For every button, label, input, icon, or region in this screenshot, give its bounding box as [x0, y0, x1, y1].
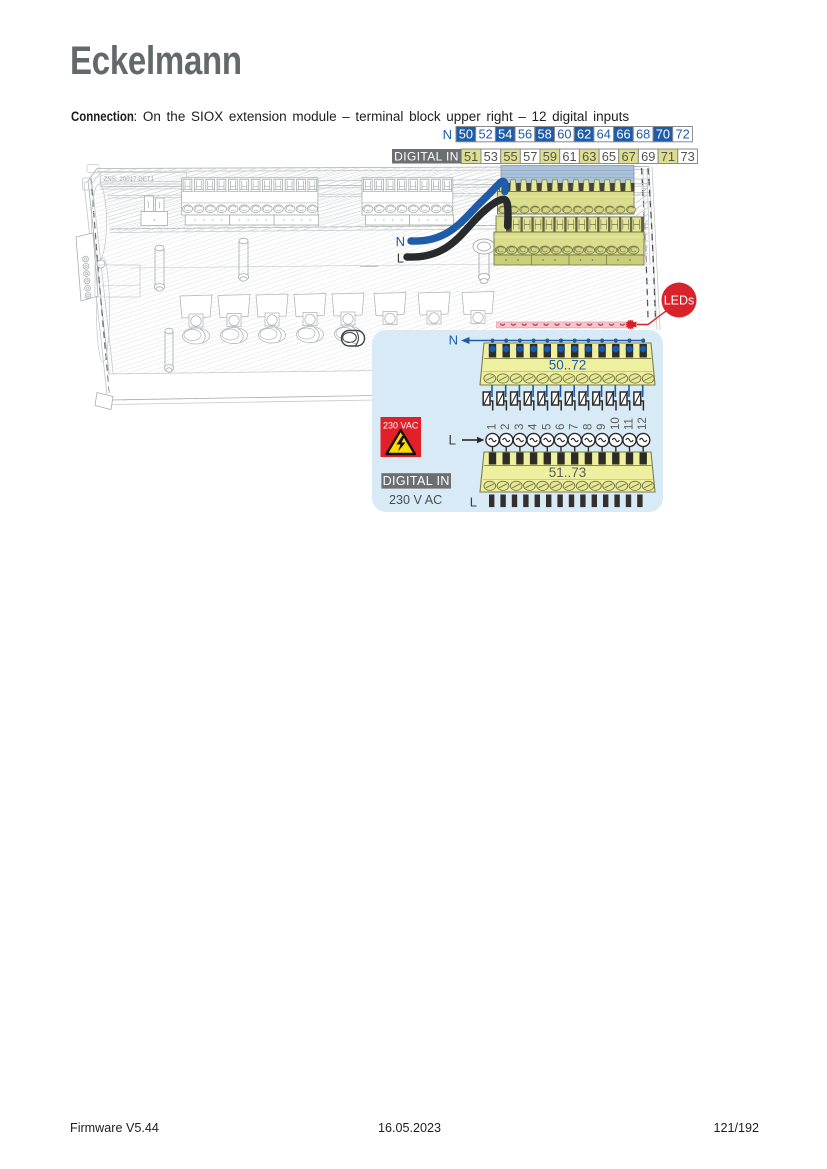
svg-text:DIGITAL IN: DIGITAL IN	[383, 474, 450, 488]
svg-text:8: 8	[582, 424, 594, 430]
svg-text:66: 66	[616, 127, 630, 142]
svg-text:LEDs: LEDs	[664, 294, 695, 308]
svg-text:64: 64	[597, 127, 611, 142]
svg-text:56: 56	[518, 127, 532, 142]
svg-text:230 V AC: 230 V AC	[389, 493, 442, 507]
svg-text:59: 59	[543, 149, 557, 164]
svg-text:68: 68	[636, 127, 650, 142]
svg-text:50..72: 50..72	[549, 358, 587, 373]
svg-text:4: 4	[528, 423, 540, 430]
svg-text:5: 5	[541, 424, 553, 430]
svg-text:58: 58	[537, 127, 551, 142]
svg-text:73: 73	[680, 149, 694, 164]
svg-text:6: 6	[555, 424, 567, 430]
svg-text:61: 61	[562, 149, 576, 164]
svg-text:53: 53	[484, 149, 498, 164]
svg-text:54: 54	[498, 127, 512, 142]
svg-text:70: 70	[656, 127, 670, 142]
svg-text:3: 3	[514, 424, 526, 430]
svg-text:DIGITAL IN: DIGITAL IN	[394, 150, 459, 164]
svg-text:60: 60	[557, 127, 571, 142]
svg-text:N: N	[449, 333, 458, 348]
svg-text:52: 52	[478, 127, 492, 142]
svg-text:12: 12	[637, 417, 649, 430]
svg-text:63: 63	[582, 149, 596, 164]
svg-text:L: L	[397, 251, 404, 266]
svg-text:L: L	[448, 433, 456, 448]
svg-text:2: 2	[500, 424, 512, 430]
svg-text:10: 10	[610, 417, 622, 430]
svg-text:50: 50	[459, 127, 473, 142]
svg-text:72: 72	[675, 127, 689, 142]
svg-text:62: 62	[577, 127, 591, 142]
svg-text:7: 7	[569, 424, 581, 430]
svg-text:L: L	[470, 495, 477, 510]
svg-text:N: N	[443, 127, 452, 142]
svg-text:51..73: 51..73	[549, 465, 587, 480]
svg-text:N: N	[396, 234, 405, 249]
svg-text:ZNS: 20017 DET1: ZNS: 20017 DET1	[104, 176, 155, 183]
svg-text:57: 57	[523, 149, 537, 164]
svg-text:71: 71	[661, 149, 675, 164]
svg-text:67: 67	[621, 149, 635, 164]
svg-text:51: 51	[464, 149, 478, 164]
svg-text:55: 55	[503, 149, 517, 164]
svg-text:11: 11	[624, 418, 636, 430]
svg-text:65: 65	[602, 149, 616, 164]
svg-text:69: 69	[641, 149, 655, 164]
svg-text:1: 1	[487, 424, 499, 430]
svg-text:9: 9	[596, 424, 608, 430]
